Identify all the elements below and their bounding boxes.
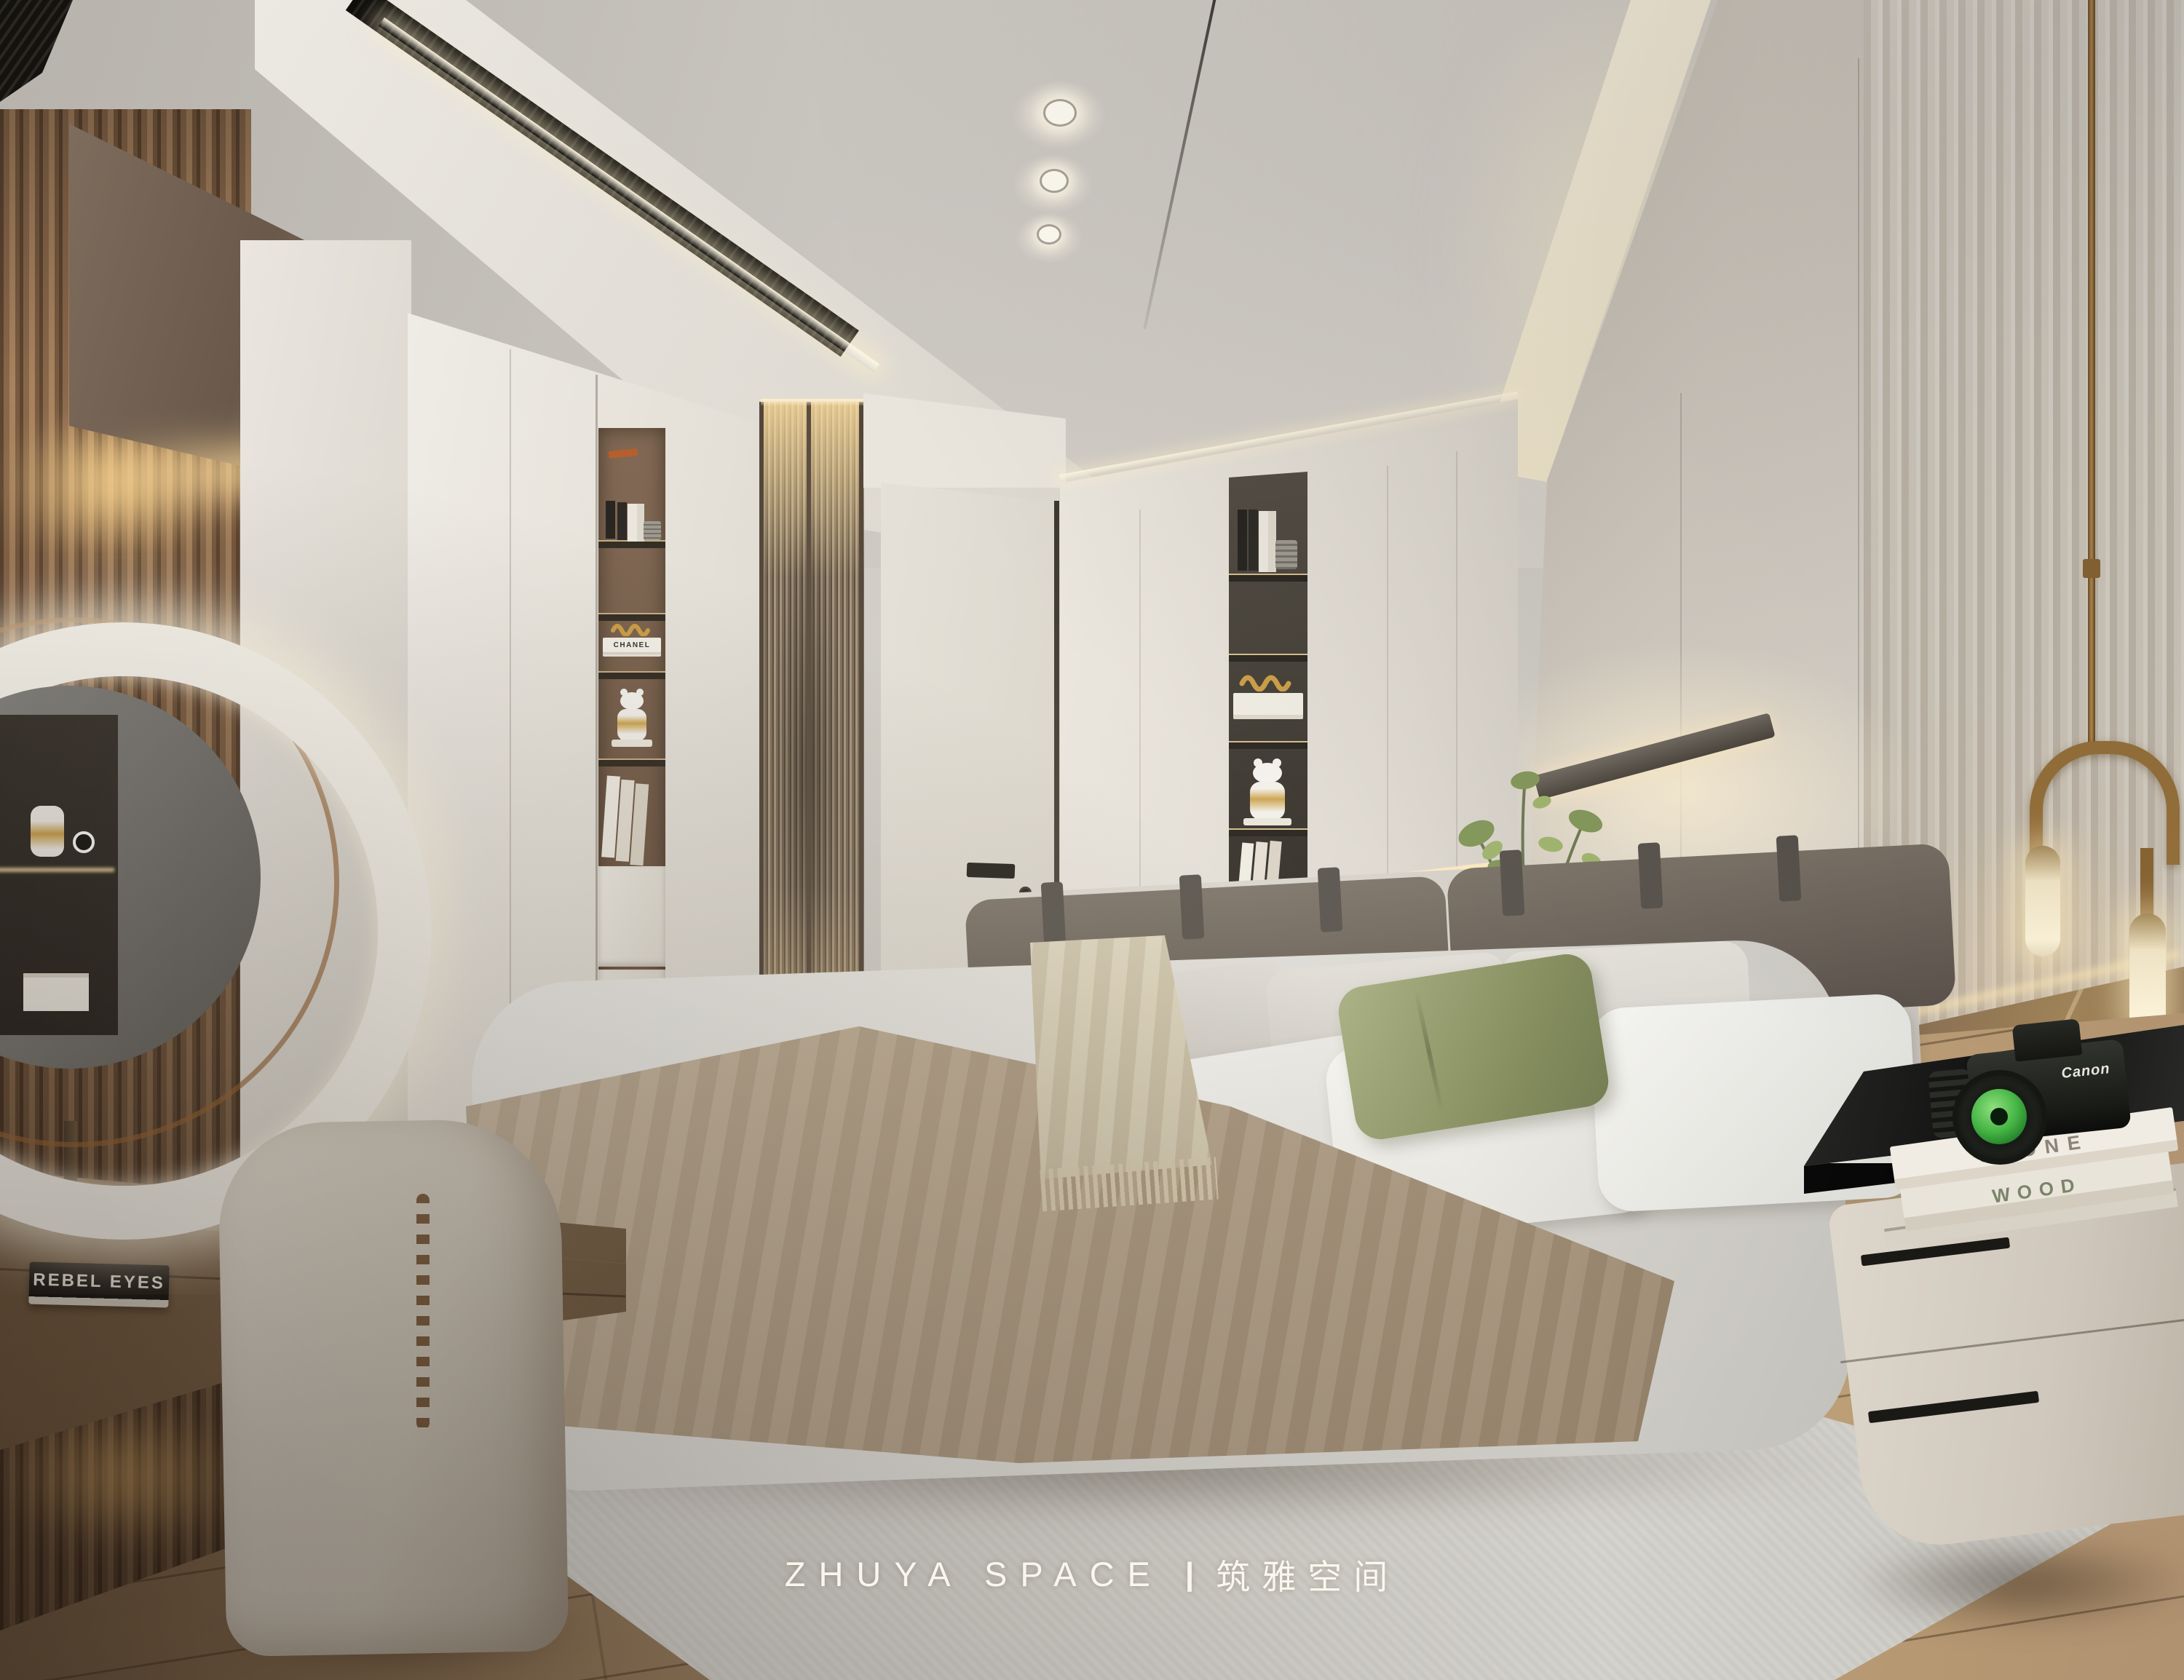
display-chanel-plinth — [1233, 693, 1303, 715]
chanel-book-title: CHANEL — [614, 641, 651, 649]
headboard-strap — [1041, 881, 1067, 946]
mirror-reflection-book — [23, 973, 89, 1011]
camera-lens-pupil — [1990, 1108, 2008, 1125]
shelf-slab — [598, 671, 665, 679]
pendant-arch — [2030, 741, 2180, 865]
door-handle — [967, 863, 1016, 879]
camera-brand-label: Canon — [2060, 1061, 2110, 1082]
bear-head — [620, 692, 644, 710]
rebel-eyes-book: REBEL EYES — [28, 1261, 169, 1307]
display-slab — [1229, 828, 1307, 836]
bear-figurine — [612, 689, 652, 753]
glass-door-led-top — [761, 399, 864, 406]
bear-body — [617, 709, 646, 741]
stool-buttons — [416, 1194, 430, 1430]
headboard-strap — [1179, 874, 1205, 939]
mirror-reflection-figurine — [31, 806, 64, 857]
vanity-stool — [218, 1118, 569, 1657]
bear-body — [1250, 782, 1285, 820]
rebel-eyes-title: REBEL EYES — [33, 1270, 165, 1294]
downlight-2 — [1040, 169, 1069, 193]
pendant-stem — [2088, 0, 2095, 753]
pendant-arm-right — [2140, 848, 2153, 921]
downlight-1 — [1043, 99, 1077, 127]
watermark: ZHUYA SPACE | 筑雅空间 — [785, 1549, 1399, 1599]
bear-base — [612, 740, 652, 747]
shelf-slab — [598, 540, 665, 548]
camera-prism-hump — [2012, 1018, 2083, 1061]
watermark-divider: | — [1185, 1556, 1194, 1593]
display-slab — [1229, 574, 1307, 582]
display-slab — [1229, 654, 1307, 662]
watermark-brand: ZHUYA SPACE — [785, 1554, 1163, 1594]
shelf-slab — [598, 758, 665, 766]
nightstand-shadow — [1849, 1536, 2184, 1631]
display-gold-ornament — [1238, 670, 1296, 692]
headboard-strap — [1776, 835, 1802, 901]
mirror-reflection-shelf-light — [0, 868, 114, 872]
shelf-books-dark — [606, 501, 615, 539]
headboard-strap — [1638, 842, 1663, 908]
niche-drawer-upper — [598, 866, 665, 967]
display-slab — [1229, 741, 1307, 749]
display-books-top — [1238, 510, 1247, 571]
display-bear — [1243, 758, 1291, 828]
shelf-plates-stack — [644, 521, 661, 540]
headboard-strap — [1318, 867, 1343, 932]
bear-base — [1243, 818, 1291, 825]
pendant-connector — [2083, 559, 2100, 578]
book-wood-text: WOOD — [1991, 1173, 2084, 1208]
bedroom-render: CHANEL — [0, 0, 2184, 1680]
bear-head — [1253, 763, 1282, 783]
chanel-book: CHANEL — [603, 638, 661, 652]
watermark-studio-cn: 筑雅空间 — [1216, 1549, 1399, 1599]
mirror-touch-button — [73, 831, 95, 853]
pendant-tube-left — [2025, 846, 2060, 956]
display-plates — [1275, 540, 1297, 569]
headboard-strap — [1500, 849, 1525, 916]
downlight-3 — [1037, 224, 1061, 245]
gold-ornament — [610, 620, 654, 636]
